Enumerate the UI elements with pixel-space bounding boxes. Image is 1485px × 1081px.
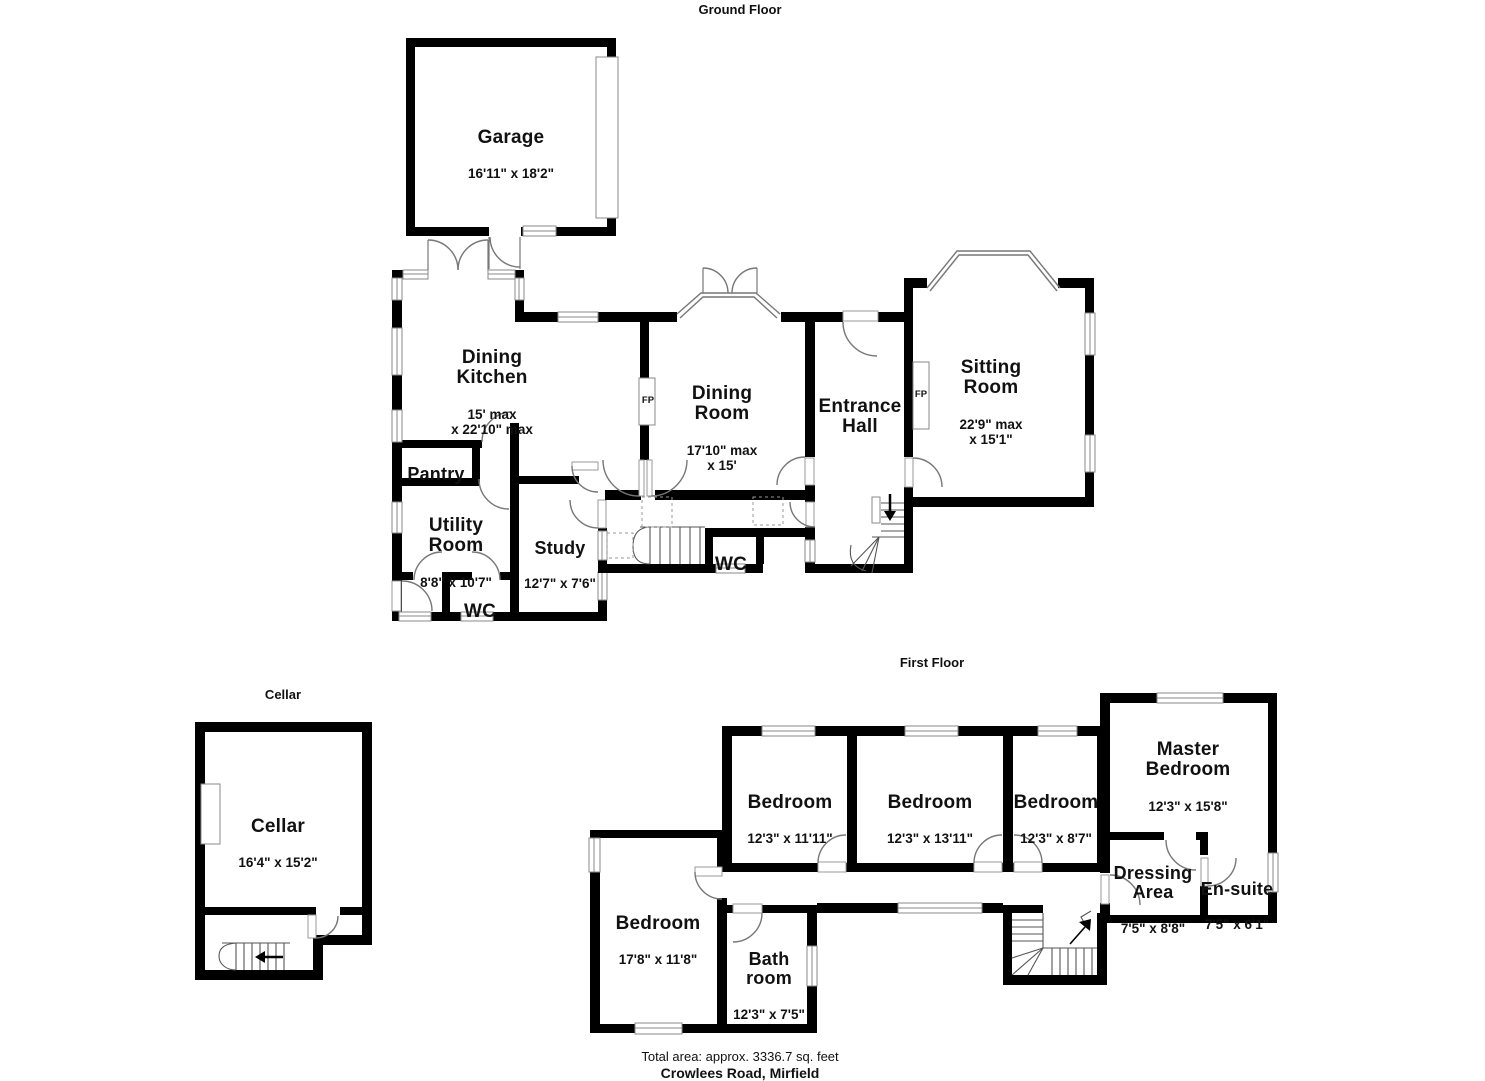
floorplan-canvas: Ground Floor First Floor Cellar Garage 1…	[0, 0, 1485, 1080]
room-label-sitting-room: Sitting Room 22'9" max x 15'1"	[960, 340, 1023, 465]
up-arrow-icon	[1070, 919, 1091, 944]
room-label-garage: Garage 16'11" x 18'2"	[468, 110, 554, 200]
first-floor-title: First Floor	[900, 655, 964, 670]
fireplace-label: FP	[915, 389, 927, 400]
ground-stairs-down	[850, 497, 904, 573]
room-label-ensuite: En-suite 7'5" x 6'1"	[1201, 862, 1274, 950]
address-text: Crowlees Road, Mirfield	[661, 1065, 820, 1081]
room-label-bedroom-4: Bedroom 17'8" x 11'8"	[616, 896, 701, 986]
bedroom-door-arc	[974, 835, 1002, 863]
room-label-bedroom-2: Bedroom 12'3" x 13'11"	[887, 775, 973, 865]
room-label-pantry: Pantry	[407, 447, 464, 502]
dining-bay-glazing	[677, 293, 780, 314]
left-arrow-icon	[255, 951, 283, 963]
room-label-wc-mid: WC	[715, 537, 747, 593]
sitting-door-arc	[913, 458, 942, 487]
room-label-master-bedroom: Master Bedroom 12'3" x 15'8"	[1146, 722, 1231, 832]
dashed-overhead-box	[607, 533, 633, 558]
kitchen-door-arc	[428, 240, 458, 270]
garage-door-arc	[490, 237, 520, 267]
garage-door-panel	[596, 57, 618, 218]
room-label-dressing-area: Dressing Area 7'5" x 8'8"	[1114, 846, 1193, 954]
dining-hall-door-arc	[777, 457, 805, 485]
dashed-overhead-box	[753, 497, 783, 525]
ground-floor-title: Ground Floor	[698, 2, 781, 17]
front-door-arc	[843, 322, 877, 356]
room-label-cellar: Cellar 16'4" x 15'2"	[238, 799, 317, 889]
room-label-entrance-hall: Entrance Hall	[819, 379, 902, 456]
room-label-wc-left: WC	[464, 584, 496, 640]
cellar-recess	[201, 784, 220, 844]
cellar-title: Cellar	[265, 687, 301, 702]
first-floor-stairs	[1012, 911, 1097, 975]
total-area-text: Total area: approx. 3336.7 sq. feet	[641, 1049, 838, 1064]
room-label-bathroom: Bath room 12'3" x 7'5"	[733, 932, 805, 1040]
room-label-dining-room: Dining Room 17'10" max x 15'	[687, 366, 757, 491]
room-label-bedroom-3: Bedroom 12'3" x 8'7"	[1014, 775, 1099, 865]
room-label-bedroom-1: Bedroom 12'3" x 11'11"	[747, 775, 832, 865]
fireplace-label: FP	[642, 395, 654, 406]
room-label-study: Study 12'7" x 7'6"	[524, 521, 596, 609]
cellar-door-arc	[316, 916, 338, 938]
room-label-dining-kitchen: Dining Kitchen 15' max x 22'10" max	[451, 330, 533, 455]
garden-door-arc	[732, 268, 757, 293]
dashed-overhead-box	[642, 497, 672, 527]
garden-door-arc	[703, 268, 728, 293]
ground-stairs-up	[633, 527, 705, 564]
